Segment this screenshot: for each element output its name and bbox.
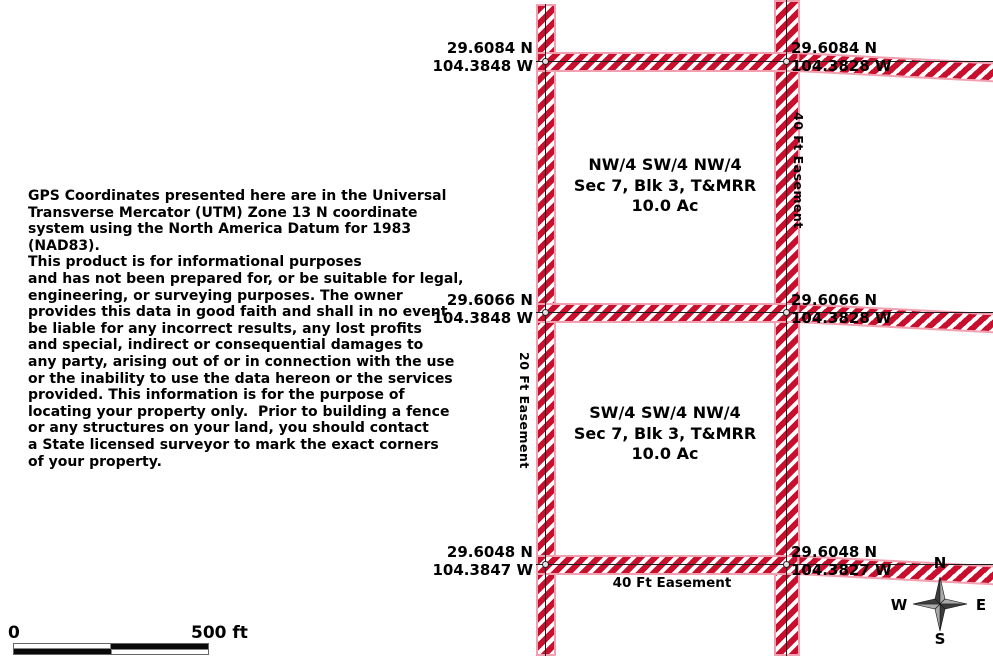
coord-lon: 104.3828 W <box>791 57 993 75</box>
coord-lon: 104.3847 W <box>293 561 533 579</box>
corner-marker-top-right <box>783 58 790 65</box>
corner-marker-bottom-right <box>783 561 790 568</box>
parcel-label-sw4: SW/4 SW/4 NW/4 Sec 7, Blk 3, T&MRR 10.0 … <box>545 403 785 465</box>
coord-lat: 29.6084 N <box>791 39 993 57</box>
compass-rose: N W E S <box>884 550 993 650</box>
coord-label-mid-right: 29.6066 N 104.3828 W <box>791 291 993 327</box>
parcel-label-nw4: NW/4 SW/4 NW/4 Sec 7, Blk 3, T&MRR 10.0 … <box>545 155 785 217</box>
easement-band-horizontal-top <box>536 52 802 72</box>
coord-lat: 29.6084 N <box>293 39 533 57</box>
corner-marker-mid-right <box>783 309 790 316</box>
corner-marker-bottom-left <box>542 561 549 568</box>
disclaimer-text: GPS Coordinates presented here are in th… <box>28 188 464 470</box>
corner-marker-mid-left <box>542 309 549 316</box>
coord-lat: 29.6066 N <box>791 291 993 309</box>
coord-label-top-left: 29.6084 N 104.3848 W <box>293 39 533 75</box>
compass-n-label: N <box>931 554 949 572</box>
coord-label-bottom-left: 29.6048 N 104.3847 W <box>293 543 533 579</box>
easement-band-horizontal-middle <box>536 303 802 323</box>
easement-label-20ft-vertical: 20 Ft Easement <box>517 352 532 469</box>
compass-w-label: W <box>890 596 908 614</box>
parcel-acreage: 10.0 Ac <box>545 444 785 465</box>
compass-s-label: S <box>931 630 949 648</box>
easement-label-40ft-horizontal: 40 Ft Easement <box>592 575 752 591</box>
scale-bar-segment <box>111 649 208 654</box>
parcel-aliquot: SW/4 SW/4 NW/4 <box>545 403 785 424</box>
compass-e-label: E <box>972 596 990 614</box>
easement-band-horizontal-bottom <box>536 555 802 575</box>
parcel-aliquot: NW/4 SW/4 NW/4 <box>545 155 785 176</box>
easement-label-40ft-vertical: 40 Ft Easement <box>791 112 806 229</box>
corner-marker-top-left <box>542 58 549 65</box>
scale-bar-segment <box>14 649 111 654</box>
coord-lon: 104.3828 W <box>791 309 993 327</box>
survey-line-vertical-right <box>786 0 787 656</box>
scale-bar <box>13 643 209 655</box>
scale-bar-zero-label: 0 <box>8 623 20 643</box>
coord-lat: 29.6048 N <box>293 543 533 561</box>
parcel-section: Sec 7, Blk 3, T&MRR <box>545 176 785 197</box>
compass-star-icon <box>908 572 972 636</box>
survey-line-vertical-left <box>545 4 546 656</box>
parcel-section: Sec 7, Blk 3, T&MRR <box>545 424 785 445</box>
coord-lon: 104.3848 W <box>293 57 533 75</box>
parcel-acreage: 10.0 Ac <box>545 196 785 217</box>
scale-bar-max-label: 500 ft <box>191 623 248 643</box>
coord-label-top-right: 29.6084 N 104.3828 W <box>791 39 993 75</box>
